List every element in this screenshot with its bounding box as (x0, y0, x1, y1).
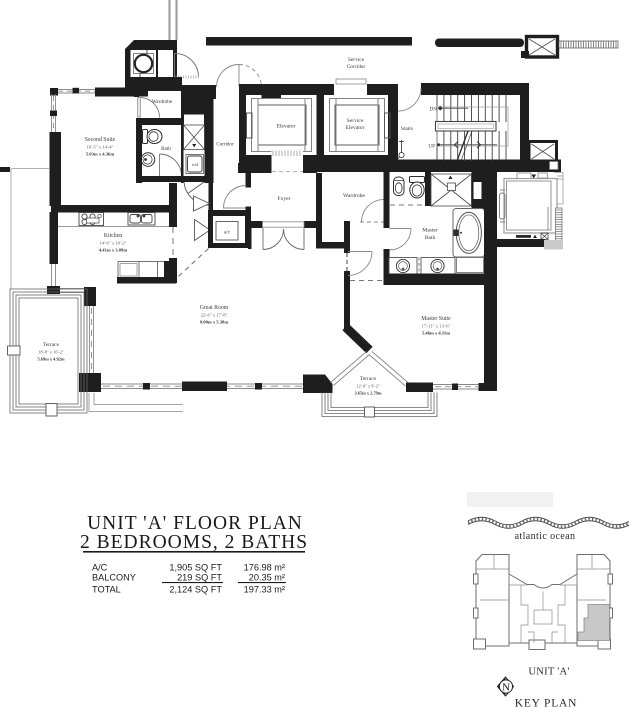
svg-text:Kitchen: Kitchen (104, 233, 122, 239)
svg-text:2 BEDROOMS, 2 BATHS: 2 BEDROOMS, 2 BATHS (80, 532, 308, 553)
svg-text:a/c: a/c (224, 230, 231, 236)
svg-text:UNIT 'A': UNIT 'A' (528, 667, 569, 678)
svg-text:w/d: w/d (192, 162, 199, 167)
svg-text:Service: Service (348, 57, 365, 63)
svg-text:Corridor: Corridor (347, 64, 366, 70)
svg-text:Foyer: Foyer (277, 196, 290, 202)
svg-text:3.65m x 2.79m: 3.65m x 2.79m (354, 391, 381, 396)
svg-text:Second Suite: Second Suite (85, 137, 116, 143)
svg-text:A/C: A/C (92, 563, 108, 573)
svg-text:18'-8" x 16'-2": 18'-8" x 16'-2" (38, 350, 64, 355)
svg-text:22'-6" x 17'-8": 22'-6" x 17'-8" (201, 313, 228, 318)
svg-text:219 SQ FT: 219 SQ FT (177, 573, 222, 583)
svg-text:KEY PLAN: KEY PLAN (515, 698, 578, 708)
svg-text:5.03m x 4.36m: 5.03m x 4.36m (86, 152, 114, 157)
svg-text:Wardrobe: Wardrobe (343, 193, 365, 199)
svg-text:5.46m x 4.11m: 5.46m x 4.11m (422, 331, 450, 336)
svg-text:UNIT 'A' FLOOR PLAN: UNIT 'A' FLOOR PLAN (87, 513, 303, 534)
svg-text:atlantic ocean: atlantic ocean (515, 531, 576, 542)
svg-text:TOTAL: TOTAL (92, 585, 121, 595)
svg-text:Corridor: Corridor (216, 143, 234, 148)
svg-text:5.69m x 4.92m: 5.69m x 4.92m (37, 357, 64, 362)
svg-text:Bath: Bath (161, 146, 171, 152)
svg-text:UP: UP (428, 144, 435, 150)
svg-text:Elevator: Elevator (277, 124, 296, 130)
svg-text:20.35 m²: 20.35 m² (249, 573, 285, 583)
svg-text:Terrace: Terrace (43, 342, 60, 348)
svg-text:176.98 m²: 176.98 m² (244, 563, 285, 573)
svg-text:197.33 m²: 197.33 m² (244, 585, 285, 595)
svg-text:Service: Service (347, 118, 364, 124)
svg-text:16'-5" x 14'-4": 16'-5" x 14'-4" (87, 145, 114, 150)
svg-text:4.41m x 3.09m: 4.41m x 3.09m (99, 248, 127, 253)
svg-text:Master Suite: Master Suite (421, 316, 451, 322)
svg-text:1,905 SQ FT: 1,905 SQ FT (169, 563, 222, 573)
svg-text:BALCONY: BALCONY (92, 573, 136, 583)
svg-text:12'-0" x 9'-2": 12'-0" x 9'-2" (356, 384, 380, 389)
svg-text:2,124 SQ FT: 2,124 SQ FT (169, 585, 222, 595)
svg-text:N: N (502, 682, 510, 694)
svg-text:Great Room: Great Room (200, 305, 229, 311)
svg-text:Terrace: Terrace (360, 376, 377, 382)
svg-text:17'-11" x 13'-6": 17'-11" x 13'-6" (422, 324, 451, 329)
svg-text:Stairs: Stairs (401, 126, 413, 132)
svg-text:9.00m x 5.38m: 9.00m x 5.38m (200, 320, 228, 325)
svg-text:DN: DN (430, 107, 438, 113)
svg-text:Bath: Bath (425, 235, 436, 241)
svg-text:Elevator: Elevator (346, 125, 365, 131)
svg-text:14'-6" x 10'-2": 14'-6" x 10'-2" (100, 241, 127, 246)
svg-text:Master: Master (422, 228, 438, 234)
